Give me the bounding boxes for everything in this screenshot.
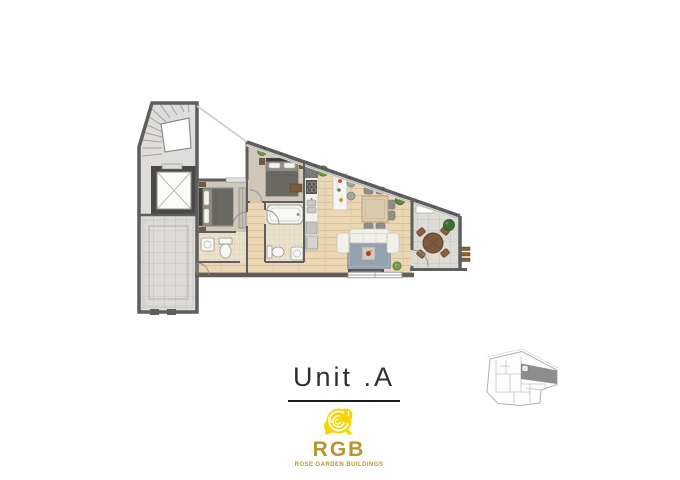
brand-initials: RGB: [289, 439, 389, 460]
elevator: [151, 164, 197, 214]
stair-elevator-block: [139, 103, 197, 315]
brand-tagline: ROSE GARDEN BUILDINGS: [289, 462, 389, 468]
title-divider: [288, 400, 400, 402]
plant-icon: [393, 262, 401, 270]
rose-icon: [313, 404, 365, 438]
key-plan-elevator: [522, 366, 528, 372]
toilet-2: [267, 246, 284, 258]
bed-1: [199, 182, 233, 232]
key-plan: [487, 349, 558, 406]
outdoor-steps: [461, 247, 470, 262]
armchair: [387, 233, 399, 253]
bathtub: [267, 205, 303, 224]
armchair: [337, 233, 349, 253]
dresser-2: [290, 184, 302, 192]
sink-1: [201, 238, 214, 251]
sofa: [350, 229, 389, 243]
stair-void: [161, 118, 191, 152]
title-block: Unit .A: [244, 362, 444, 402]
kitchen-sink: [307, 198, 316, 213]
stool: [347, 192, 355, 200]
hall-strip-floor: [197, 262, 304, 273]
coffee-table: [362, 247, 375, 260]
dishwasher: [306, 222, 317, 234]
sink-2: [291, 247, 303, 260]
dining-table: [362, 196, 388, 222]
balcony-plant-icon: [444, 220, 455, 231]
kitchen-counter: [305, 165, 318, 250]
wardrobe-1: [239, 188, 246, 228]
brand-logo: RGB ROSE GARDEN BUILDINGS: [289, 404, 389, 468]
stone-courtyard: [141, 216, 196, 315]
page: Unit .A RGB ROSE GARDEN BUILDINGS: [0, 0, 680, 480]
unit-title: Unit .A: [244, 362, 444, 393]
stove: [306, 180, 317, 194]
toilet-1: [219, 238, 232, 258]
